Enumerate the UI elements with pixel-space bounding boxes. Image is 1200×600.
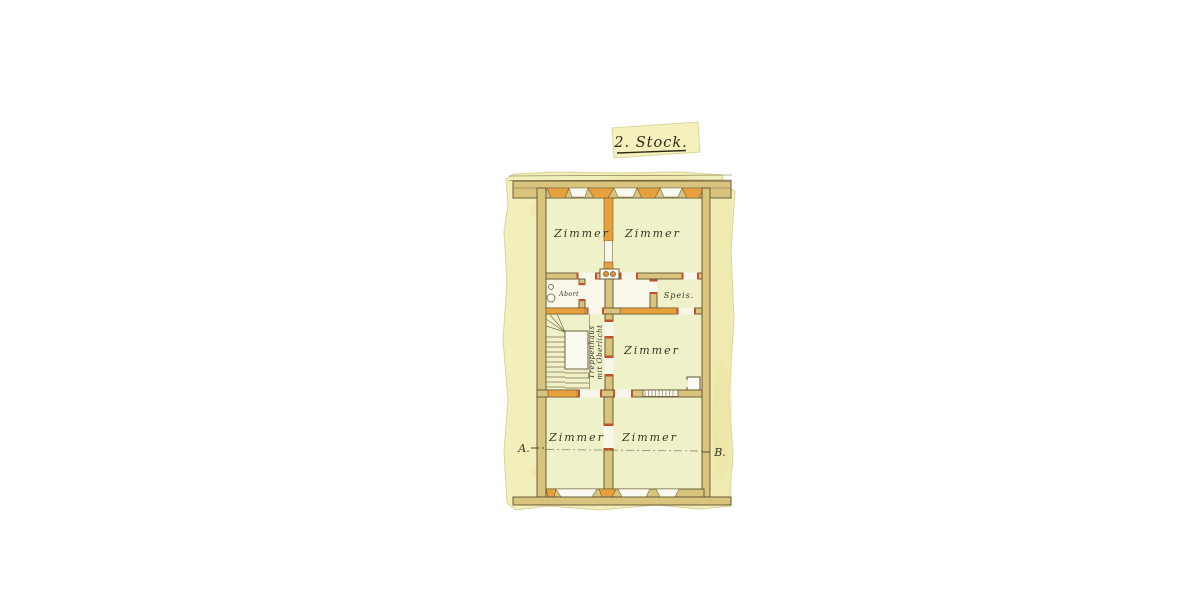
- door-jamb: [636, 273, 638, 280]
- wall-corridor-spine-mid: [605, 279, 613, 308]
- door-gap-bottom-central: [604, 426, 614, 448]
- chimney-flue-icon: [603, 271, 608, 276]
- page-title: 2. Stock.: [613, 135, 687, 151]
- window-bottom-3: [656, 489, 679, 497]
- door-jamb: [577, 273, 579, 280]
- brick-pier-bottom-1: [546, 489, 556, 497]
- door-jamb: [605, 320, 614, 323]
- door-gap-topleft-room: [578, 273, 595, 280]
- brick-seg-mid-right: [620, 308, 678, 314]
- door-jamb: [613, 390, 615, 398]
- room-label-bottom-right: Zimmer: [621, 431, 678, 444]
- door-jamb: [579, 283, 586, 285]
- stove-niche: [687, 377, 700, 390]
- door-gap-corridor-2: [605, 358, 614, 374]
- door-jamb: [600, 390, 602, 398]
- door-jamb: [602, 308, 604, 315]
- room-label-toilet: Abort: [558, 291, 579, 298]
- window-top-3: [660, 188, 682, 197]
- section-marker-b: B.: [713, 446, 726, 459]
- door-jamb: [579, 299, 586, 301]
- door-jamb: [677, 308, 679, 315]
- stair-landing: [565, 331, 588, 369]
- staircase-label-line2: mit Oberlicht: [596, 324, 604, 379]
- door-jamb: [587, 308, 589, 315]
- staircase-label-line1: Treppenhaus: [588, 325, 596, 378]
- door-gap-bottomright-room: [615, 390, 631, 398]
- spine-wall-opening: [604, 241, 613, 262]
- door-gap-speis-top: [683, 273, 697, 280]
- door-jamb: [605, 336, 614, 339]
- room-label-top-left: Zimmer: [553, 227, 610, 240]
- door-gap-topright-room: [621, 273, 636, 280]
- brick-seg-stair-bottom: [548, 390, 577, 397]
- outer-wall-left: [537, 188, 546, 497]
- outer-wall-right: [702, 188, 710, 497]
- window-top-1: [569, 188, 588, 197]
- room-label-top-right: Zimmer: [624, 227, 681, 240]
- section-marker-a: A.: [517, 442, 529, 455]
- window-bottom-1: [556, 489, 597, 497]
- door-jamb: [682, 273, 684, 280]
- wc-fixture-icon: [549, 285, 554, 290]
- scanned-page: A. B. Zimmer Zimmer Zimmer Zimmer Zimmer…: [0, 0, 1200, 600]
- door-jamb: [604, 424, 614, 427]
- window-bottom-2: [618, 489, 650, 497]
- door-jamb: [605, 374, 614, 377]
- brick-seg-mid-left: [546, 308, 585, 314]
- door-gap-toilet: [579, 285, 586, 299]
- door-jamb: [578, 390, 580, 398]
- door-jamb: [631, 390, 633, 398]
- room-label-pantry: Speis.: [664, 291, 695, 300]
- door-jamb: [620, 273, 622, 280]
- door-gap-stairhall: [588, 308, 602, 315]
- room-label-bottom-left: Zimmer: [548, 431, 605, 444]
- door-gap-bottomleft-room: [580, 390, 600, 398]
- door-jamb: [605, 356, 614, 359]
- floor-plan-drawing: A. B. Zimmer Zimmer Zimmer Zimmer Zimmer…: [0, 0, 1200, 600]
- door-jamb: [697, 273, 699, 280]
- chimney-box: [600, 269, 619, 279]
- door-gap-corridor-1: [605, 322, 614, 336]
- window-top-2: [614, 188, 637, 197]
- brick-pier-top-1: [547, 188, 569, 198]
- door-gap-pantry: [650, 281, 658, 292]
- door-gap-midright-room: [678, 308, 694, 315]
- wc-fixture-icon: [547, 294, 555, 302]
- door-jamb: [650, 292, 658, 294]
- door-jamb: [650, 280, 658, 282]
- door-jamb: [595, 273, 597, 280]
- chimney-flue-icon: [610, 271, 615, 276]
- door-jamb: [694, 308, 696, 315]
- anteroom-floor: [613, 279, 650, 308]
- corridor-floor: [585, 279, 605, 308]
- room-label-middle-right: Zimmer: [623, 344, 680, 357]
- pavement-strip: [513, 497, 731, 505]
- stove-niche-opening: [686, 380, 688, 387]
